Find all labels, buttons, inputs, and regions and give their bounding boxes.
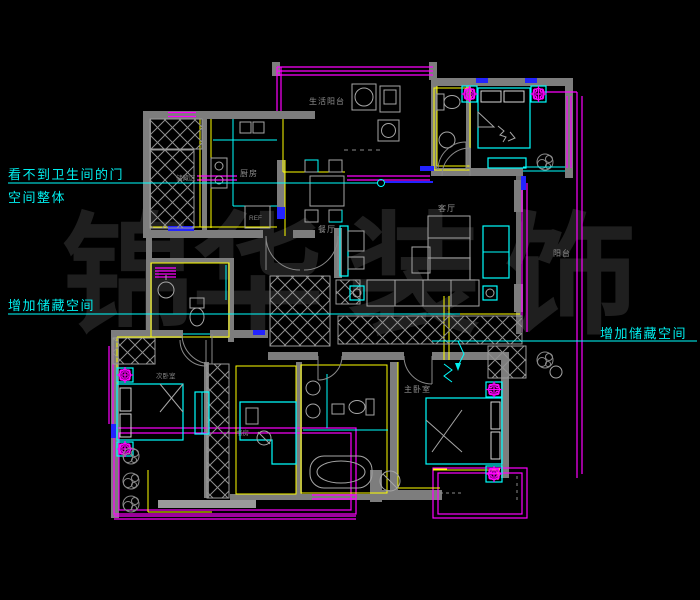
- label-bedroom-second: 次卧室: [156, 371, 176, 380]
- label-study: 书房: [236, 428, 249, 437]
- entry-door-arc: [266, 236, 300, 270]
- laundry-balcony: [344, 84, 400, 150]
- dining-table: [310, 176, 344, 206]
- plant-icon: [123, 473, 139, 489]
- door-arc: [404, 356, 432, 384]
- ceiling-lamp-icon: [486, 382, 502, 398]
- door-arc: [318, 356, 342, 380]
- balcony-right: [537, 352, 562, 378]
- fridge-label: REF: [249, 215, 262, 222]
- small-bathroom: [437, 94, 466, 170]
- side-table: [483, 286, 497, 300]
- balcony-shelf: [158, 500, 256, 508]
- label-kitchen: 厨房: [240, 168, 258, 178]
- plant-icon: [537, 154, 553, 170]
- toilet-tank: [366, 399, 374, 415]
- callout-add-storage-right: 增加储藏空间: [600, 326, 687, 341]
- toilet-tank: [190, 298, 204, 308]
- chair: [305, 160, 318, 172]
- sink-basin: [253, 122, 264, 133]
- toilet-tank: [437, 94, 444, 110]
- curtain-symbol: [444, 364, 452, 382]
- cabinet: [332, 404, 344, 414]
- hall-closet: [270, 276, 330, 346]
- pillow: [504, 91, 524, 102]
- pillow: [491, 402, 500, 429]
- plant-icon: [537, 352, 553, 368]
- bookshelf-study: [207, 364, 229, 498]
- living-room: [340, 216, 509, 306]
- tv: [348, 231, 364, 251]
- pillow: [120, 388, 131, 411]
- label-storage-area: 储藏区: [176, 173, 196, 182]
- coffee-table: [412, 247, 430, 273]
- chair: [329, 160, 342, 172]
- entry-door-arc: [304, 236, 338, 270]
- toilet-bowl: [190, 308, 204, 326]
- storage-row: [338, 316, 522, 344]
- wardrobe-bedroom2: [113, 338, 155, 364]
- washbasin: [158, 282, 174, 298]
- closet-topleft: [150, 119, 202, 149]
- pillow: [481, 91, 501, 102]
- label-balcony-right: 阳台: [553, 248, 571, 258]
- chair: [329, 210, 342, 222]
- ceiling-lamp-icon: [531, 86, 547, 102]
- washbasin: [306, 381, 320, 395]
- leader-arrowhead: [455, 363, 461, 371]
- label-dining: 餐厅: [318, 225, 336, 234]
- washbasin: [306, 404, 320, 418]
- chair: [305, 210, 318, 222]
- bedroom-north: [442, 86, 565, 176]
- bed-bench: [488, 158, 526, 168]
- pillow: [491, 432, 500, 459]
- floorplan-canvas: 锦 华 装 饰: [0, 0, 700, 600]
- callout-add-storage-left: 增加储藏空间: [8, 298, 95, 313]
- label-laundry-balcony: 生活阳台: [309, 96, 345, 106]
- media-box: [348, 257, 364, 269]
- closet-strip: [150, 150, 194, 228]
- sink-basin: [240, 122, 251, 133]
- sofa-main: [428, 216, 470, 280]
- callout-bathroom-door: 看不到卫生间的门: [8, 167, 124, 182]
- monitor: [246, 408, 258, 424]
- toilet-bowl: [349, 401, 365, 414]
- floorplan-drawing: REF: [0, 0, 700, 600]
- callout-space-overall: 空间整体: [8, 190, 66, 205]
- label-master-bedroom: 主卧室: [404, 384, 431, 394]
- label-living: 客厅: [438, 203, 456, 213]
- bed: [117, 384, 183, 440]
- ceiling-lamp-icon: [117, 367, 133, 383]
- toilet-bowl: [444, 96, 460, 109]
- door-arc: [182, 334, 212, 364]
- plant-icon: [123, 496, 139, 512]
- storage-corner: [488, 346, 526, 378]
- bathroom-mid: [158, 265, 226, 366]
